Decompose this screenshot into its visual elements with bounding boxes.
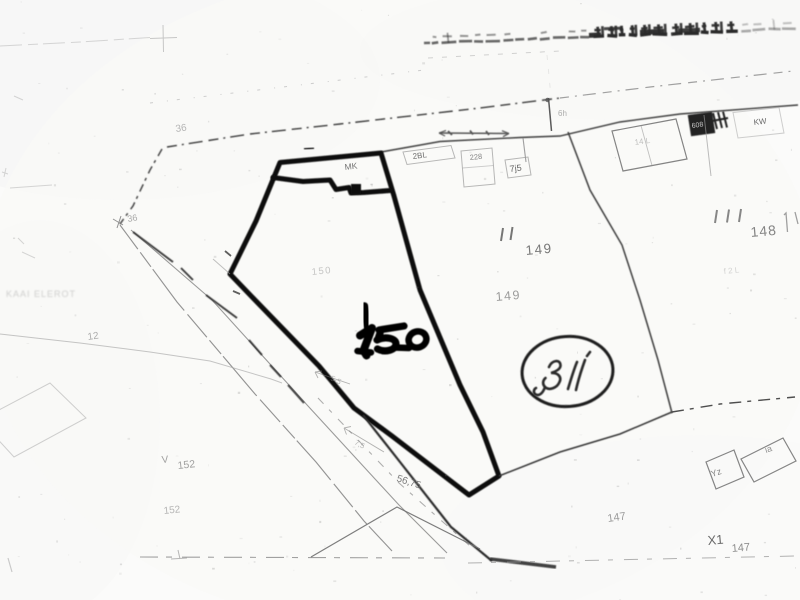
svg-text:f 2 L: f 2 L [723, 265, 740, 276]
svg-text:147: 147 [731, 541, 750, 555]
svg-text:152: 152 [163, 504, 181, 517]
svg-text:X1: X1 [707, 532, 724, 548]
svg-text:152: 152 [177, 458, 196, 472]
svg-text:36: 36 [175, 122, 188, 135]
svg-text:KAAI ELEROT: KAAI ELEROT [6, 289, 76, 299]
svg-text:149: 149 [525, 241, 553, 258]
svg-text:148: 148 [750, 222, 778, 240]
svg-text:6h: 6h [558, 109, 567, 118]
svg-text:7j5: 7j5 [509, 163, 522, 174]
svg-text:2BL: 2BL [412, 150, 428, 161]
svg-text:228: 228 [469, 152, 482, 162]
svg-text:150: 150 [311, 265, 332, 278]
svg-text:147: 147 [607, 511, 627, 525]
svg-text:KW: KW [753, 116, 767, 127]
svg-text:MK: MK [344, 160, 358, 172]
svg-text:36: 36 [127, 212, 139, 224]
svg-text:12: 12 [87, 330, 100, 343]
svg-text:149: 149 [495, 288, 521, 304]
